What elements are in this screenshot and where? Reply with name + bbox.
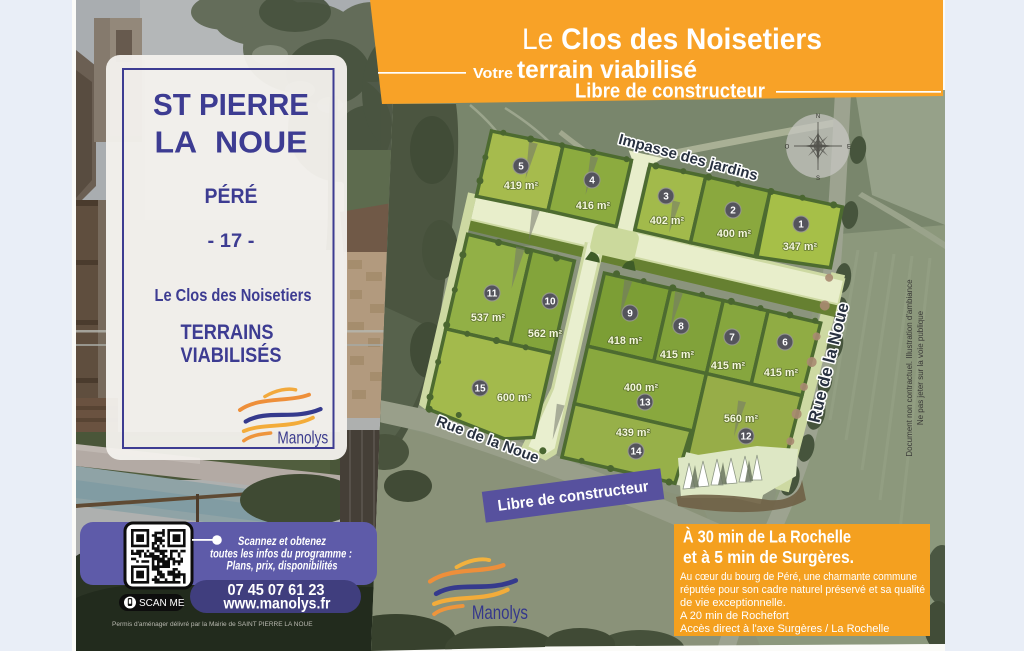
svg-text:SCAN ME: SCAN ME	[139, 598, 185, 609]
svg-text:PÉRÉ: PÉRÉ	[205, 183, 258, 208]
svg-text:Permis d'aménager délivré par: Permis d'aménager délivré par la Mairie …	[112, 621, 313, 628]
svg-text:7: 7	[729, 333, 735, 344]
svg-text:Votre: Votre	[473, 66, 513, 82]
svg-text:1: 1	[798, 220, 804, 231]
svg-text:ST PIERRE: ST PIERRE	[153, 87, 309, 122]
svg-text:www.manolys.fr: www.manolys.fr	[223, 596, 331, 613]
svg-text:415 m²: 415 m²	[660, 349, 695, 361]
svg-text:réputée pour son cadre naturel: réputée pour son cadre naturel préservé …	[680, 584, 925, 596]
svg-text:12: 12	[740, 432, 752, 443]
svg-text:Document non contractuel. Illu: Document non contractuel. Illustration d…	[905, 279, 914, 457]
svg-text:347 m²: 347 m²	[783, 241, 818, 253]
svg-text:15: 15	[474, 384, 486, 395]
svg-text:Le Clos des Noisetiers: Le Clos des Noisetiers	[522, 23, 822, 56]
svg-text:de vie exceptionnelle.: de vie exceptionnelle.	[680, 597, 786, 609]
svg-text:et à 5 min de Surgères.: et à 5 min de Surgères.	[683, 547, 854, 567]
svg-text:560 m²: 560 m²	[724, 413, 759, 425]
svg-text:14: 14	[630, 447, 642, 458]
svg-text:LA NOUE: LA NOUE	[155, 125, 308, 160]
svg-text:À 30 min de La Rochelle: À 30 min de La Rochelle	[683, 526, 851, 547]
svg-text:Manolys: Manolys	[277, 428, 328, 448]
svg-text:A 20 min de Rochefort: A 20 min de Rochefort	[680, 610, 789, 622]
svg-text:5: 5	[518, 162, 524, 173]
svg-text:8: 8	[678, 322, 684, 333]
svg-text:TERRAINS: TERRAINS	[181, 321, 274, 344]
svg-text:600 m²: 600 m²	[497, 392, 532, 404]
svg-text:416 m²: 416 m²	[576, 200, 611, 212]
svg-text:10: 10	[544, 297, 556, 308]
svg-text:Au cœur du bourg de Péré, une: Au cœur du bourg de Péré, une charmante …	[680, 571, 917, 583]
svg-text:402 m²: 402 m²	[650, 215, 685, 227]
svg-text:9: 9	[627, 309, 633, 320]
svg-text:415 m²: 415 m²	[711, 360, 746, 372]
svg-text:419 m²: 419 m²	[504, 180, 539, 192]
svg-text:11: 11	[487, 289, 498, 300]
svg-text:Accès direct à l'axe Surgères: Accès direct à l'axe Surgères / La Roche…	[680, 623, 889, 635]
svg-text:415 m²: 415 m²	[764, 367, 799, 379]
svg-text:3: 3	[663, 192, 669, 203]
svg-text:VIABILISÉS: VIABILISÉS	[181, 344, 282, 367]
svg-text:S: S	[816, 176, 820, 182]
svg-text:439 m²: 439 m²	[616, 427, 651, 439]
svg-text:6: 6	[782, 338, 788, 349]
svg-text:Manolys: Manolys	[472, 602, 528, 624]
svg-text:N: N	[816, 114, 820, 120]
svg-text:Plans, prix, disponibilités: Plans, prix, disponibilités	[227, 559, 338, 573]
svg-text:- 17 -: - 17 -	[208, 230, 255, 252]
svg-text:O: O	[785, 145, 790, 151]
svg-text:Ne pas jeter sur la voie publi: Ne pas jeter sur la voie publique	[916, 310, 925, 425]
svg-text:418 m²: 418 m²	[608, 335, 643, 347]
svg-text:Libre de constructeur: Libre de constructeur	[575, 81, 765, 103]
svg-text:537 m²: 537 m²	[471, 312, 506, 324]
svg-text:562 m²: 562 m²	[528, 328, 563, 340]
svg-text:4: 4	[589, 176, 595, 187]
svg-text:2: 2	[730, 206, 736, 217]
svg-text:400 m²: 400 m²	[717, 228, 752, 240]
svg-text:400 m²: 400 m²	[624, 382, 659, 394]
svg-text:13: 13	[639, 398, 651, 409]
svg-text:Le Clos des Noisetiers: Le Clos des Noisetiers	[155, 285, 312, 305]
svg-text:E: E	[847, 145, 851, 151]
